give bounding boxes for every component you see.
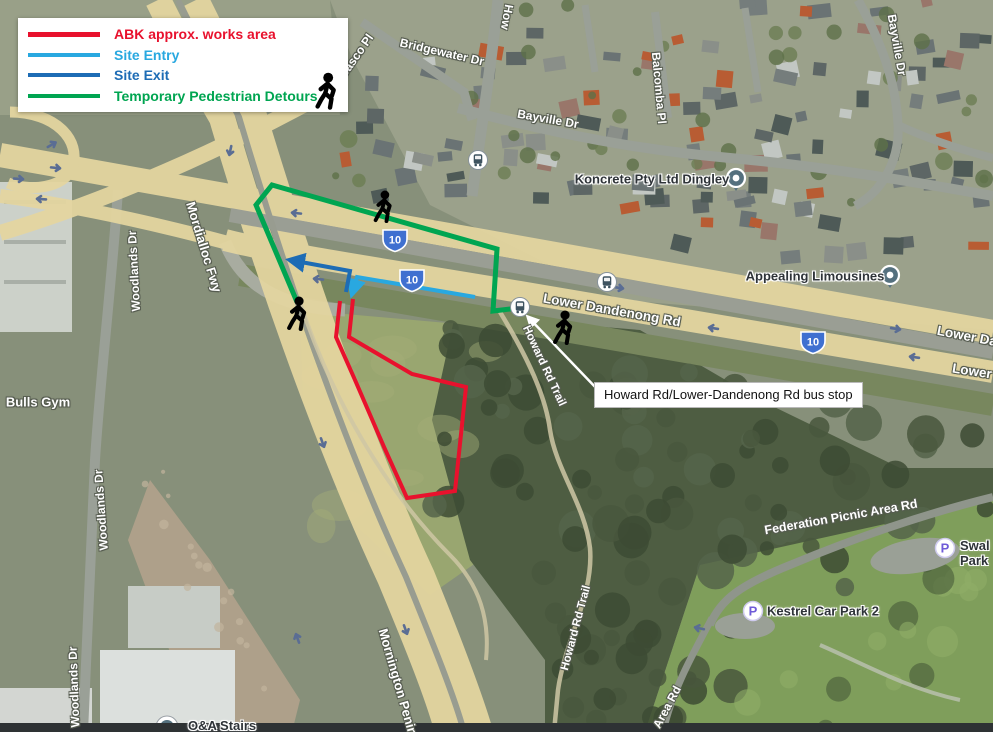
bus-stop-icon — [511, 298, 530, 317]
legend-label-works: ABK approx. works area — [114, 26, 276, 42]
bus-stop-icon — [598, 273, 617, 292]
poi-label-swallow-line1: Swal — [960, 538, 990, 553]
legend-item-detour: Temporary Pedestrian Detours — [28, 87, 338, 105]
poi-label-stairs: O&A Stairs — [188, 718, 256, 732]
poi-label-appealing: Appealing Limousines — [746, 269, 885, 284]
bottom-bar — [0, 723, 993, 732]
route-shield-10-b: 10 — [400, 270, 424, 292]
poi-label-swallow-line2: Park — [960, 553, 990, 568]
legend: ABK approx. works area Site Entry Site E… — [18, 18, 348, 112]
legend-item-entry: Site Entry — [28, 46, 338, 64]
parking-icon-kestrel: P — [744, 602, 763, 621]
bus-stop-callout: Howard Rd/Lower-Dandenong Rd bus stop — [594, 382, 863, 408]
legend-label-detour: Temporary Pedestrian Detours — [114, 88, 318, 104]
svg-text:10: 10 — [389, 235, 401, 247]
route-shield-10-a: 10 — [383, 230, 407, 252]
poi-label-koncrete: Koncrete Pty Ltd Dingley — [575, 172, 730, 187]
road-label-woodlands-3: Woodlands Dr — [66, 646, 83, 728]
legend-swatch-works — [28, 32, 100, 37]
legend-swatch-detour — [28, 94, 100, 98]
route-shield-10-c: 10 — [801, 332, 825, 354]
legend-item-works: ABK approx. works area — [28, 25, 338, 43]
legend-label-exit: Site Exit — [114, 67, 169, 83]
pedestrian-icon — [308, 70, 344, 110]
svg-text:10: 10 — [807, 337, 819, 349]
bus-stop-icon — [469, 151, 488, 170]
poi-label-kestrel: Kestrel Car Park 2 — [767, 604, 879, 619]
legend-label-entry: Site Entry — [114, 47, 179, 63]
poi-label-swallow-park: Swal Park — [960, 538, 990, 568]
parking-icon-swallow: P — [936, 539, 955, 558]
svg-text:P: P — [749, 604, 758, 619]
svg-text:P: P — [941, 541, 950, 556]
legend-swatch-exit — [28, 73, 100, 77]
works-map: 10 10 10 P P Bridgewater Dr Casco Pl How… — [0, 0, 993, 732]
svg-text:10: 10 — [406, 275, 418, 287]
poi-label-bulls-gym: Bulls Gym — [6, 395, 70, 410]
legend-item-exit: Site Exit — [28, 66, 338, 84]
legend-swatch-entry — [28, 53, 100, 57]
